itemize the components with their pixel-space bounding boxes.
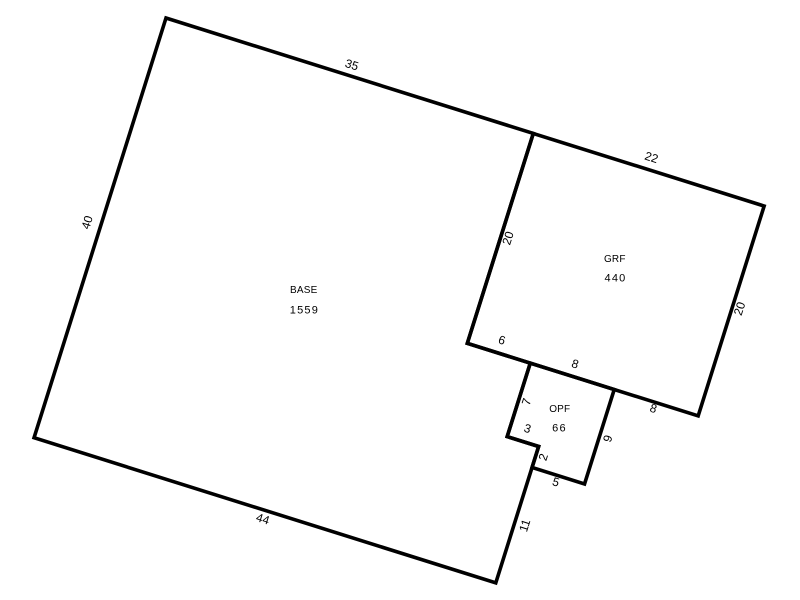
svg-text:2: 2 xyxy=(536,452,551,463)
svg-text:3: 3 xyxy=(522,421,533,436)
svg-text:44: 44 xyxy=(254,510,271,527)
svg-text:6: 6 xyxy=(497,332,508,347)
svg-text:40: 40 xyxy=(79,214,96,231)
svg-text:11: 11 xyxy=(516,517,533,533)
svg-text:8: 8 xyxy=(648,401,659,416)
svg-text:5: 5 xyxy=(551,474,562,489)
svg-text:20: 20 xyxy=(731,300,748,317)
svg-text:7: 7 xyxy=(519,396,534,407)
svg-text:9: 9 xyxy=(600,433,615,444)
svg-text:OPF: OPF xyxy=(549,404,570,415)
svg-text:35: 35 xyxy=(343,56,360,73)
svg-text:66: 66 xyxy=(552,423,567,435)
svg-text:GRF: GRF xyxy=(604,254,626,265)
svg-text:BASE: BASE xyxy=(290,285,318,296)
svg-text:440: 440 xyxy=(605,273,627,285)
svg-text:22: 22 xyxy=(643,149,660,166)
svg-text:20: 20 xyxy=(499,229,516,246)
svg-text:8: 8 xyxy=(570,356,581,371)
svg-text:1559: 1559 xyxy=(290,305,319,317)
